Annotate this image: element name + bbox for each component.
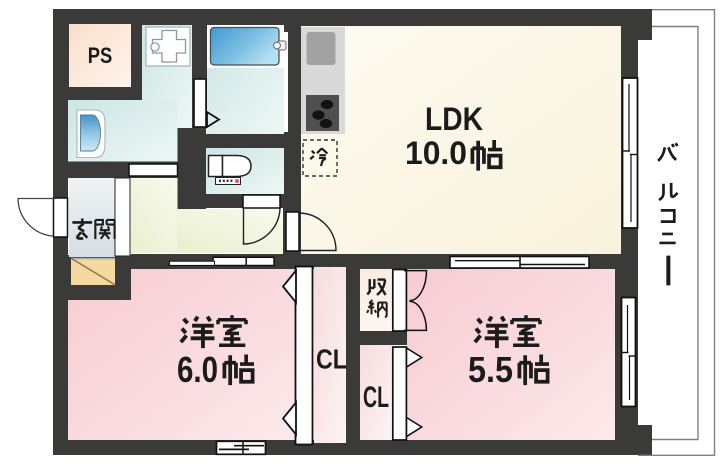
svg-text:CL: CL	[363, 381, 389, 414]
svg-text:5.5: 5.5	[468, 349, 513, 390]
svg-text:10.0: 10.0	[405, 135, 467, 171]
svg-text:6.0: 6.0	[177, 349, 218, 390]
svg-text:LDK: LDK	[425, 101, 483, 137]
svg-text:CL: CL	[316, 344, 347, 375]
svg-text:PS: PS	[88, 43, 113, 68]
